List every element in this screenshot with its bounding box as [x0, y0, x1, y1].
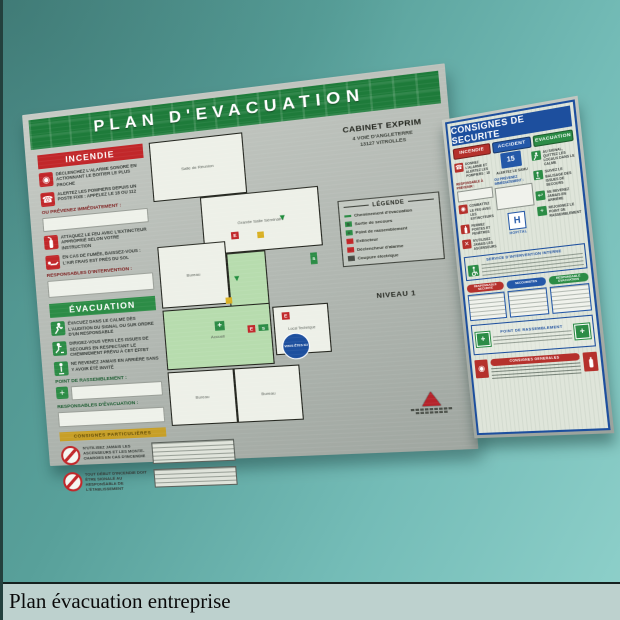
logo-text-line: [416, 410, 449, 414]
evacuation-item-text: DIRIGEZ-VOUS VERS LES ISSUES DE SECOURS …: [69, 335, 159, 357]
extinguisher-marker-icon: E: [247, 325, 255, 333]
hospital-icon: H: [508, 210, 527, 230]
extinguisher-red-icon: [582, 351, 598, 371]
consignes-particulieres-label: CONSIGNES PARTICULIÈRES: [74, 430, 152, 439]
interdiction-note-box: [153, 466, 237, 488]
crawl-low-icon: [45, 255, 60, 270]
hand-button-icon: ◉: [474, 359, 489, 378]
interdiction-note-box: [151, 439, 236, 464]
evacuation-instruction: SUIVEZ LE BALISAGE DES ISSUES DE SECOURS: [545, 165, 579, 187]
assembly-point-icon: +: [475, 331, 490, 346]
evacuation-arrow-icon: ▼: [278, 212, 288, 222]
floor-plan: Salle de Réunion Grande Salle Séminaire …: [146, 122, 339, 426]
responsables-evacuation-box: [58, 407, 166, 428]
consignes-generales-row: ◉ CONSIGNES GENERALES: [474, 351, 599, 381]
evacuation-item-text: NE REVENEZ JAMAIS EN ARRIÈRE SANS Y AVOI…: [71, 356, 161, 372]
responsable-evacuation-box: [549, 283, 592, 314]
incendie-instruction: COMBATTEZ LE FEU AVEC LES EXTINCTEURS: [469, 201, 496, 221]
level-label: NIVEAU 1: [339, 287, 456, 303]
evacuation-instruction: AU SIGNAL, QUITTEZ LES LOCAUX DANS LE CA…: [542, 145, 576, 167]
assembly-point-icon: +: [56, 387, 69, 400]
incendie-header-label: INCENDIE: [65, 149, 115, 165]
extinguisher-marker-icon: E: [231, 232, 239, 240]
hospital-letter: H: [513, 215, 521, 226]
legend-entry-label: Déclencheur d'alarme: [357, 243, 404, 252]
caption-bar: Plan évacuation entreprise: [0, 582, 620, 620]
power-cutoff-icon: [348, 255, 355, 261]
logo-triangle-icon: [421, 391, 441, 406]
incendie-instruction: N'UTILISEZ JAMAIS LES ASCENSEURS: [473, 236, 500, 251]
emergency-exit-icon: S: [345, 221, 352, 227]
hospital-label: HOPITAL: [500, 227, 538, 236]
incendie-instruction: FERMEZ PORTES ET FENÊTRES: [471, 221, 498, 237]
room-bureau-1: Bureau: [157, 241, 230, 309]
board-info-column: CABINET EXPRIM 4 VOIE D'ANGLETERRE 13127…: [324, 114, 455, 303]
hand-alarm-icon: ◉: [458, 205, 468, 215]
room-bureau-3: Bureau: [234, 364, 304, 422]
room-bureau-2: Bureau: [168, 368, 239, 426]
room-label: Bureau: [186, 272, 200, 278]
assembly-point-icon: +: [346, 230, 353, 236]
no-smoking-icon: [63, 472, 84, 492]
incendie-instruction: DONNEZ L'ALARME ET ALERTEZ LES POMPIERS …: [465, 158, 492, 178]
exit-marker-icon: S: [258, 324, 268, 331]
phone-fire-icon: ☎: [454, 163, 464, 173]
interdiction-text: N'UTILISEZ JAMAIS LES ASCENSEURS ET LES …: [83, 443, 150, 461]
room-label: Accueil: [211, 334, 225, 340]
assembly-point-icon: +: [574, 323, 591, 339]
secouristes-box: [508, 287, 549, 317]
column-bodies: ☎ DONNEZ L'ALARME ET ALERTEZ LES POMPIER…: [454, 142, 584, 253]
no-elevator-small-icon: ✕: [462, 239, 472, 249]
evacuation-instruction: NE REVENEZ JAMAIS EN ARRIÈRE: [547, 185, 580, 202]
evacuation-arrow-icon: ▼: [232, 273, 241, 283]
phone-icon: ☎: [40, 192, 55, 207]
no-elevator-icon: [60, 446, 81, 466]
exit-path-icon: [52, 341, 67, 356]
alarm-button-icon: ◉: [39, 172, 54, 187]
evacuation-item: ÉVACUEZ DANS LE CALME DÈS L'AUDITION DU …: [51, 314, 158, 338]
evacuation-item: NE REVENEZ JAMAIS EN ARRIÈRE SANS Y AVOI…: [54, 356, 161, 377]
extinguisher-icon: [44, 235, 59, 250]
no-return-small-icon: ↩: [535, 190, 545, 201]
responsable-securite-box: [468, 291, 508, 321]
alarm-marker-icon: [257, 231, 264, 238]
maker-logo: [405, 390, 459, 414]
responsables-pills-row: RESPONSABLE SECURITE SECOURISTES RESPONS…: [467, 272, 593, 321]
legend-title: LÉGENDE: [372, 199, 405, 208]
extinguisher-small-icon: [460, 224, 470, 234]
legend-entry-label: Sortie de secours: [355, 218, 393, 227]
caption-text: Plan évacuation entreprise: [0, 584, 620, 618]
legend-entry-label: Extincteur: [356, 236, 378, 243]
room-salle-reunion: Salle de Réunion: [149, 132, 248, 202]
consignes-particulieres-band: CONSIGNES PARTICULIÈRES: [59, 428, 166, 442]
room-label: Local Technique: [288, 326, 316, 332]
extinguisher-icon: [346, 238, 353, 244]
evacuation-instruction: REJOIGNEZ LE POINT DE RASSEMBLEMENT: [548, 201, 581, 218]
room-accueil: Accueil: [162, 303, 274, 371]
assembly-small-icon: +: [537, 206, 547, 217]
legend-box: LÉGENDE Cheminement d'évacuation S Sorti…: [337, 191, 445, 267]
legend-entry-label: Coupure électrique: [357, 252, 398, 261]
exit-sign-icon: [531, 150, 541, 161]
room-label: Bureau: [261, 391, 276, 396]
evacuation-item: DIRIGEZ-VOUS VERS LES ISSUES DE SECOURS …: [52, 335, 159, 358]
evacuation-column: AU SIGNAL, QUITTEZ LES LOCAUX DANS LE CA…: [531, 142, 585, 244]
incendie-item-text: EN CAS DE FUMÉE, BAISSEZ-VOUS : L'AIR FR…: [62, 247, 152, 266]
running-man-icon: [533, 170, 543, 181]
samu-number: 15: [506, 155, 515, 163]
photo-left-edge: [0, 0, 3, 620]
room-label: Salle de Réunion: [181, 164, 214, 172]
interdiction-text: TOUT DÉBUT D'INCENDIE DOIT ÊTRE SIGNALÉ …: [85, 470, 152, 493]
alarm-marker-icon: [225, 297, 232, 304]
accident-write-in-box: [495, 182, 535, 210]
rassemblement-box: + POINT DE RASSEMBLEMENT +: [471, 314, 596, 355]
you-are-here-label: VOUS ÊTES ICI: [284, 343, 308, 348]
samu-15-icon: 15: [500, 150, 522, 168]
evacuation-item-text: ÉVACUEZ DANS LE CALME DÈS L'AUDITION DU …: [67, 314, 157, 337]
rassemblement-write-in-box: [71, 381, 163, 400]
assembly-point-marker-icon: +: [214, 321, 224, 331]
exit-running-man-icon: [51, 321, 66, 336]
exit-marker-icon: S: [310, 252, 318, 264]
room-label: Bureau: [195, 395, 209, 400]
extinguisher-marker-icon: E: [282, 312, 290, 320]
evacuation-path-icon: [344, 214, 350, 217]
wheelchair-icon: [468, 265, 480, 277]
photo-scene: PLAN D'EVACUATION INCENDIE ◉ DÉCLENCHEZ …: [0, 0, 620, 620]
evacuation-plan-board: PLAN D'EVACUATION INCENDIE ◉ DÉCLENCHEZ …: [22, 63, 478, 466]
alarm-trigger-icon: ◦: [347, 247, 354, 253]
evacuation-header-label: ÉVACUATION: [69, 300, 136, 315]
no-return-icon: [54, 362, 69, 377]
